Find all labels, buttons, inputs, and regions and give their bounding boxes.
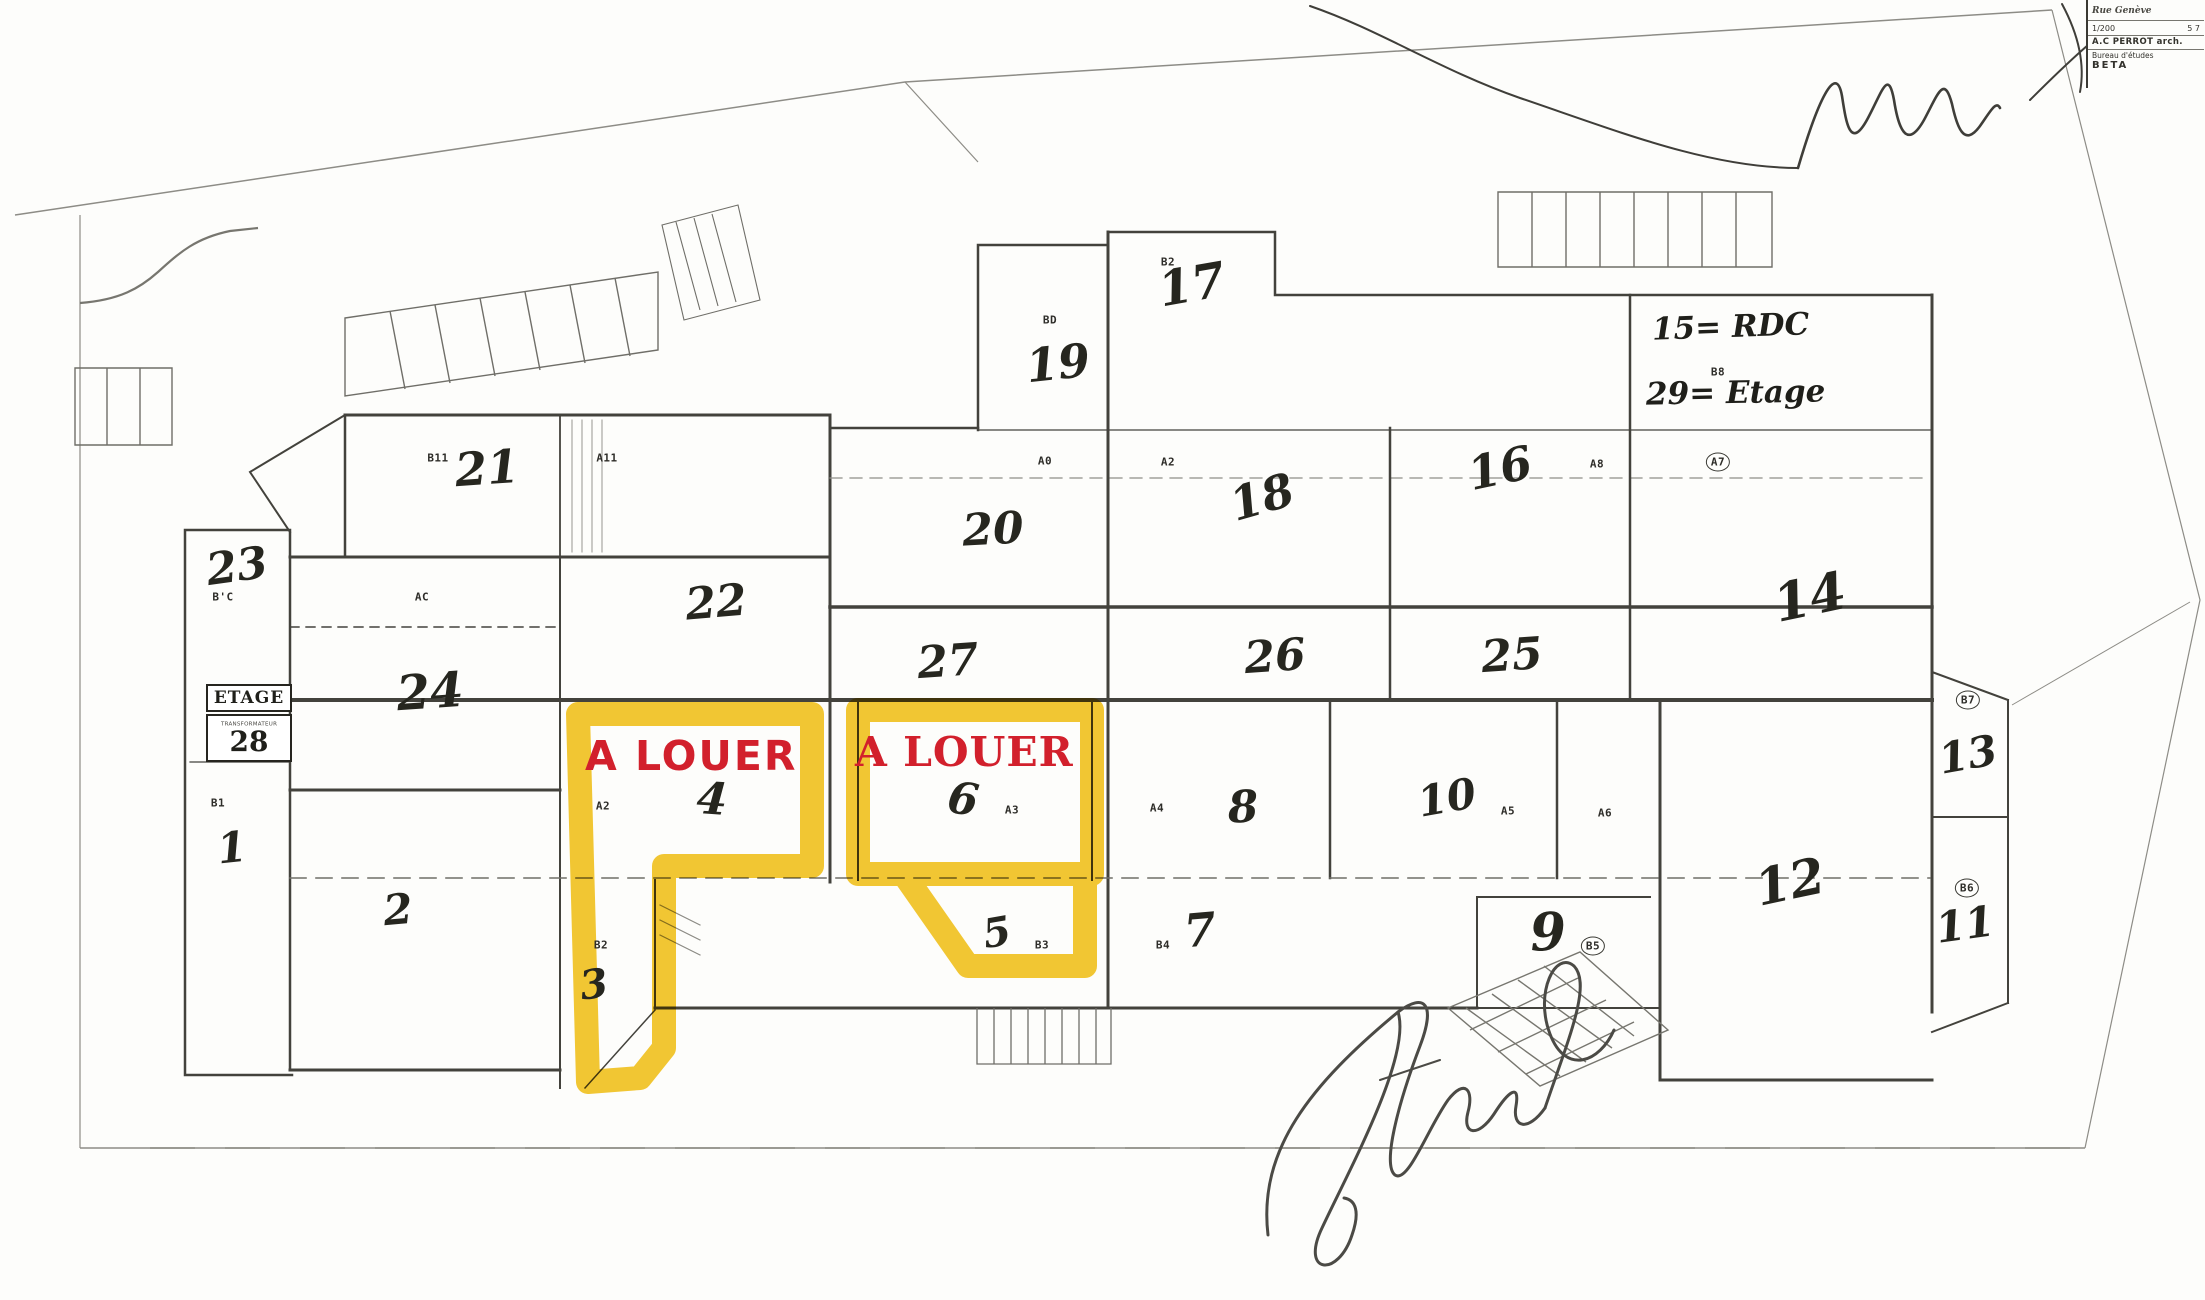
code-b5: B5	[1581, 937, 1605, 956]
unit-number-14: 14	[1769, 565, 1851, 631]
title-block-office-label: Bureau d'études	[2092, 51, 2154, 60]
a-louer-label-2: A LOUER	[855, 732, 1074, 773]
code-bc: B'C	[212, 592, 233, 603]
code-a3: A3	[1005, 805, 1019, 816]
code-a6: A6	[1598, 808, 1612, 819]
unit-number-11: 11	[1933, 900, 1997, 950]
unit-number-28: 28	[230, 728, 269, 756]
unit-number-8: 8	[1227, 785, 1260, 831]
code-ac: AC	[415, 592, 429, 603]
title-block-sheet: 5 7	[2187, 24, 2200, 33]
title-block-architect: A.C PERROT arch.	[2088, 35, 2204, 49]
code-b2: B2	[594, 940, 608, 951]
unit-number-25: 25	[1480, 632, 1544, 680]
code-a0: A0	[1038, 456, 1052, 467]
unit-number-1: 1	[215, 826, 248, 871]
code-b6: B6	[1955, 879, 1979, 898]
unit-number-24: 24	[395, 666, 465, 719]
unit-number-10: 10	[1415, 772, 1480, 824]
unit-number-6: 6	[945, 776, 981, 824]
code-b11: B11	[427, 453, 448, 464]
title-block-office: Bureau d'études BETA	[2088, 49, 2204, 73]
unit-number-19: 19	[1024, 337, 1092, 389]
code-bd: BD	[1043, 315, 1057, 326]
unit-number-16: 16	[1464, 439, 1536, 497]
code-a7: A7	[1706, 453, 1730, 472]
unit-number-27: 27	[916, 638, 980, 686]
code-a2: A2	[1161, 457, 1175, 468]
unit-number-18: 18	[1225, 466, 1299, 528]
code-b7: B7	[1956, 691, 1980, 710]
title-block-office-name: BETA	[2092, 60, 2128, 71]
unit-number-12: 12	[1751, 850, 1829, 913]
a-louer-label-1: A LOUER	[585, 736, 797, 777]
code-b8: B8	[1711, 367, 1725, 378]
unit-number-5: 5	[980, 911, 1014, 955]
unit-number-21: 21	[453, 443, 520, 493]
code-b2: B2	[1161, 257, 1175, 268]
etage-box: ETAGE	[206, 684, 292, 712]
title-block-scale: 1/200	[2092, 24, 2115, 33]
code-a2: A2	[596, 801, 610, 812]
unit-number-20: 20	[961, 506, 1024, 553]
unit-number-2: 2	[382, 888, 415, 932]
unit-number-4: 4	[695, 777, 729, 823]
unit-28-box: TRANSFORMATEUR 28	[206, 714, 292, 762]
code-b1: B1	[211, 798, 225, 809]
note-29-etage: 29= Etage	[1646, 376, 1826, 410]
code-b4: B4	[1156, 940, 1170, 951]
unit-number-22: 22	[684, 578, 749, 627]
labels-layer: A LOUER A LOUER 15= RDC 29= Etage ETAGE …	[0, 0, 2205, 1300]
scanned-floor-plan: A LOUER A LOUER 15= RDC 29= Etage ETAGE …	[0, 0, 2205, 1300]
transformer-label: TRANSFORMATEUR	[221, 721, 277, 728]
code-a4: A4	[1150, 803, 1164, 814]
code-a8: A8	[1590, 459, 1604, 470]
code-a5: A5	[1501, 806, 1515, 817]
unit-number-9: 9	[1529, 906, 1568, 960]
code-a11: A11	[596, 453, 617, 464]
code-b3: B3	[1035, 940, 1049, 951]
unit-number-26: 26	[1243, 633, 1307, 681]
unit-number-3: 3	[577, 963, 610, 1006]
title-block-project: Rue Genève	[2088, 0, 2204, 20]
etage-box-label: ETAGE	[214, 690, 284, 707]
title-block: Rue Genève 1/200 5 7 A.C PERROT arch. Bu…	[2086, 0, 2204, 88]
unit-number-13: 13	[1936, 729, 2001, 781]
title-block-scale-row: 1/200 5 7	[2088, 20, 2204, 35]
note-15-rdc: 15= RDC	[1652, 309, 1810, 345]
unit-number-7: 7	[1182, 906, 1218, 955]
unit-number-23: 23	[204, 541, 271, 593]
